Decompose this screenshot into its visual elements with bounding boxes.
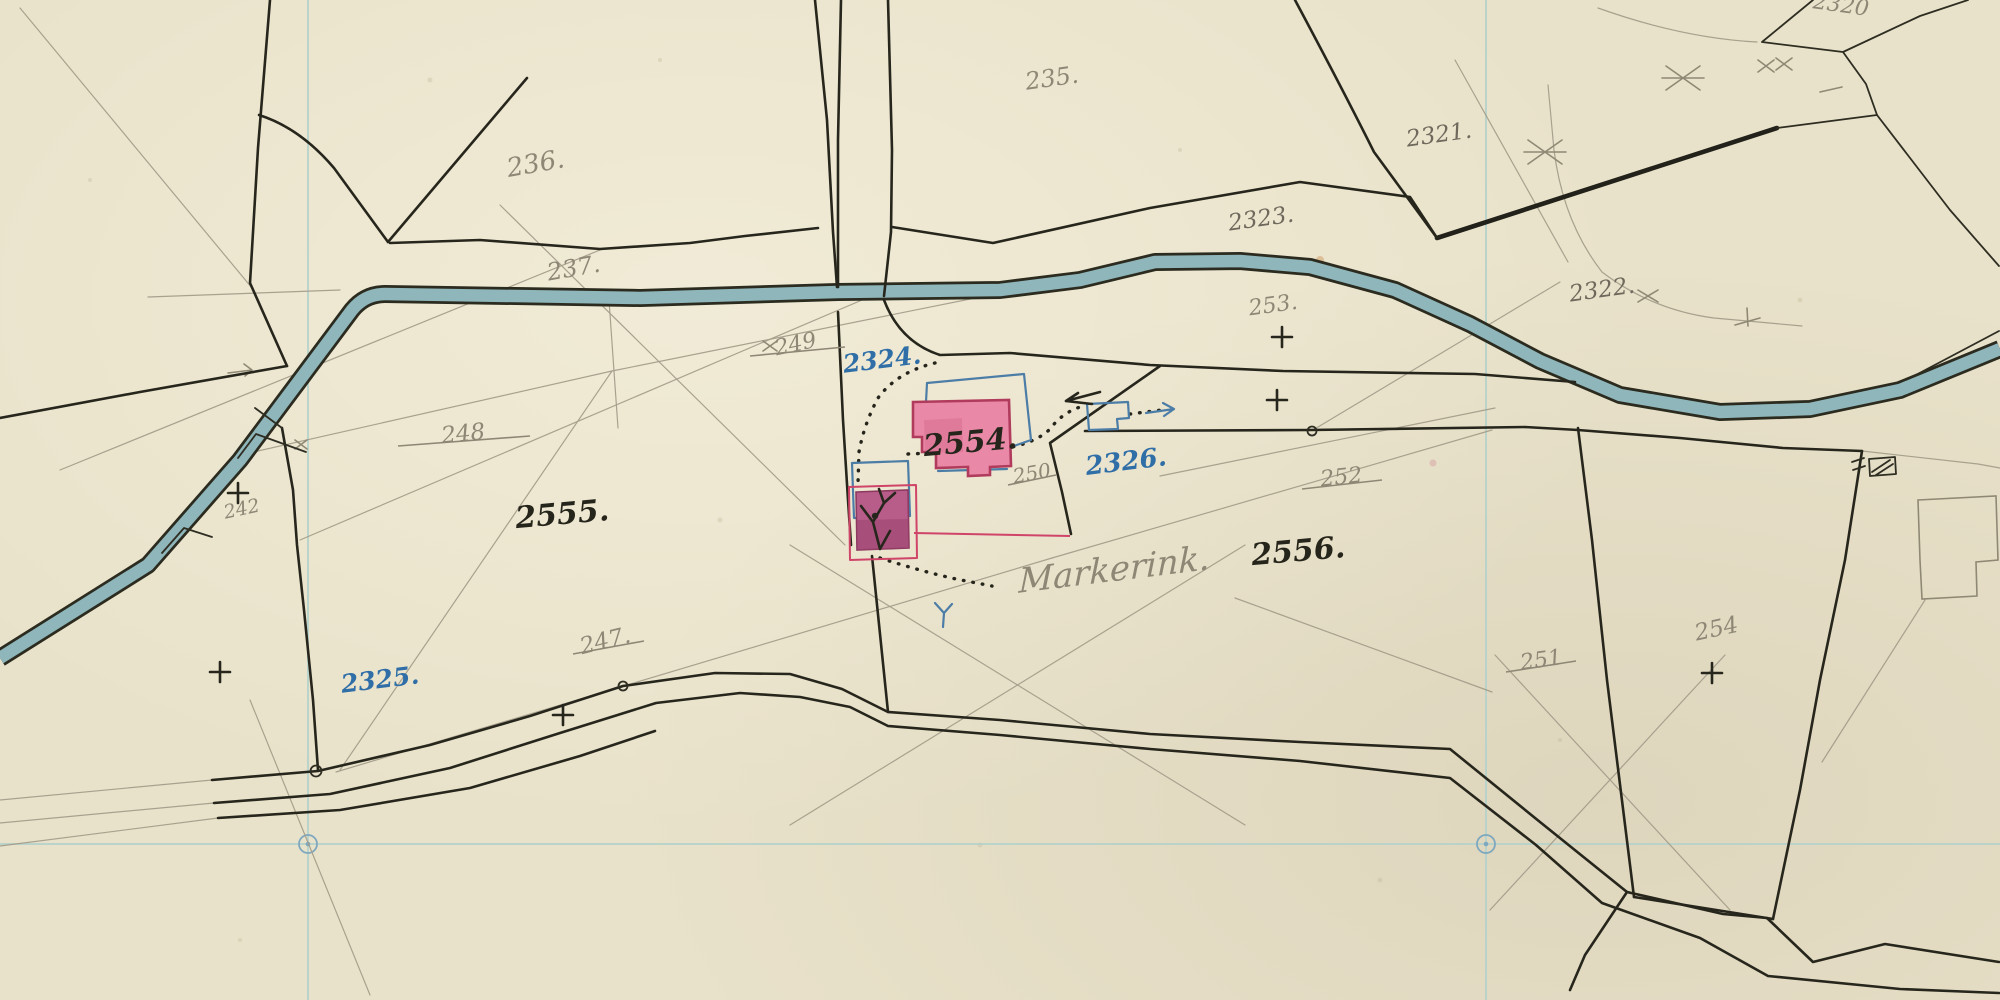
road-middle-east bbox=[1085, 427, 1862, 451]
pencil-double-x-mark bbox=[1758, 58, 1792, 72]
paper-speck bbox=[428, 78, 433, 83]
shed-outline-blue bbox=[1087, 402, 1129, 430]
parcel-236-south-boundary bbox=[390, 228, 818, 249]
road-south-north-edge bbox=[212, 673, 1999, 962]
paper-speck bbox=[88, 178, 92, 182]
parcel-label-242: 242 bbox=[221, 495, 262, 524]
parcel-boundary bbox=[0, 366, 287, 418]
parcel-label-2324: 2324. bbox=[840, 340, 922, 378]
small-building-ticks bbox=[1852, 458, 1865, 470]
farm-name-label: Markerink. bbox=[1017, 538, 1210, 602]
parcel-label-236: 236. bbox=[504, 144, 567, 184]
pencil-boundary-2320 bbox=[1598, 8, 1757, 42]
pencil-construction-line bbox=[20, 8, 252, 288]
pencil-construction-line bbox=[1455, 60, 1568, 262]
paper-speck bbox=[1558, 738, 1562, 742]
lane-west bbox=[282, 428, 318, 770]
dotted-path bbox=[880, 558, 992, 586]
cross-marks bbox=[210, 327, 1722, 725]
farm-lane-south bbox=[872, 556, 888, 712]
parcel-label-248-struck: 248 bbox=[439, 419, 486, 450]
parcel-label-249-struck: 249 bbox=[772, 328, 819, 361]
paper-speck bbox=[238, 938, 242, 942]
parcel-label-2323: 2323. bbox=[1226, 202, 1296, 237]
paper-speck bbox=[1798, 298, 1803, 303]
pencil-road-continuation-west bbox=[0, 780, 218, 846]
road-north-west-edge bbox=[815, 0, 837, 287]
pencil-star-mark bbox=[1662, 66, 1704, 90]
parcel-label-251-struck: 251 bbox=[1518, 645, 1564, 676]
parcel-2321-west-boundary bbox=[1295, 0, 1437, 238]
cadastral-map-canvas: 235. 236. 237. 2320 2321. 2322. 2323. 24… bbox=[0, 0, 2000, 1000]
small-building-ink bbox=[1869, 457, 1896, 476]
parcel-label-253: 253. bbox=[1246, 290, 1299, 322]
pencil-dash-mark bbox=[1820, 87, 1842, 92]
grid-intersection-dot bbox=[1484, 842, 1489, 847]
parcel-label-247-struck: 247. bbox=[576, 622, 633, 660]
paper-speck bbox=[658, 58, 662, 62]
parcel-label-235: 235. bbox=[1022, 60, 1080, 95]
bold-parcel-boundary bbox=[1437, 128, 1777, 238]
parcel-boundary bbox=[1877, 115, 1999, 266]
road-north-east-edge bbox=[884, 0, 892, 296]
road-spur-southwest bbox=[1570, 892, 1627, 990]
pencil-construction-line bbox=[1822, 600, 1925, 762]
road-along-stream-south bbox=[884, 300, 1575, 382]
paper-stain bbox=[1430, 460, 1437, 467]
road-north-middle-line bbox=[838, 0, 841, 287]
parcel-boundary bbox=[259, 115, 388, 242]
red-property-line bbox=[914, 533, 1070, 536]
cadastral-map-sheet: 235. 236. 237. 2320 2321. 2322. 2323. 24… bbox=[0, 0, 2000, 1000]
blue-y-mark bbox=[935, 603, 952, 627]
ink-survey-symbols bbox=[210, 327, 1722, 777]
parcel-boundary bbox=[250, 0, 287, 366]
parcel-label-2326: 2326. bbox=[1083, 442, 1168, 482]
parcel-label-252-struck: 252 bbox=[1318, 463, 1363, 492]
survey-grid bbox=[0, 0, 2000, 1000]
parcel-label-2322: 2322. bbox=[1567, 273, 1637, 308]
pencil-tee-mark bbox=[1735, 308, 1760, 326]
pencil-construction-line bbox=[250, 700, 370, 995]
pencil-construction-line bbox=[148, 290, 340, 297]
parcel-label-2556: 2556. bbox=[1249, 530, 1347, 573]
pencil-construction-line bbox=[1235, 598, 1492, 692]
pencil-star-mark bbox=[1524, 140, 1566, 164]
building-outline-pencil bbox=[1918, 496, 1998, 599]
parcel-2323-south-boundary bbox=[892, 182, 1437, 243]
paper-speck bbox=[718, 518, 723, 523]
parcel-label-2555: 2555. bbox=[513, 493, 611, 536]
pencil-construction-line bbox=[1495, 655, 1730, 910]
parcel-label-2321: 2321. bbox=[1404, 118, 1474, 153]
parcel-254-east-boundary bbox=[1773, 451, 1862, 919]
parcel-254-west-boundary bbox=[1578, 428, 1634, 897]
black-arrow-mark bbox=[1066, 392, 1100, 404]
parcel-label-237: 237. bbox=[544, 250, 602, 287]
parcel-label-2320: 2320 bbox=[1810, 0, 1870, 22]
pencil-construction-line bbox=[500, 205, 845, 545]
map-labels: 235. 236. 237. 2320 2321. 2322. 2323. 24… bbox=[221, 0, 1871, 699]
paper-speck bbox=[1178, 148, 1182, 152]
parcel-254-south-boundary bbox=[1634, 897, 1773, 919]
parcel-label-2325: 2325. bbox=[338, 660, 420, 698]
parcel-boundary bbox=[1777, 115, 1877, 128]
paper-speck bbox=[1378, 878, 1383, 883]
parcel-label-254: 254 bbox=[1691, 612, 1740, 647]
tree-trunk-dot bbox=[872, 513, 878, 519]
